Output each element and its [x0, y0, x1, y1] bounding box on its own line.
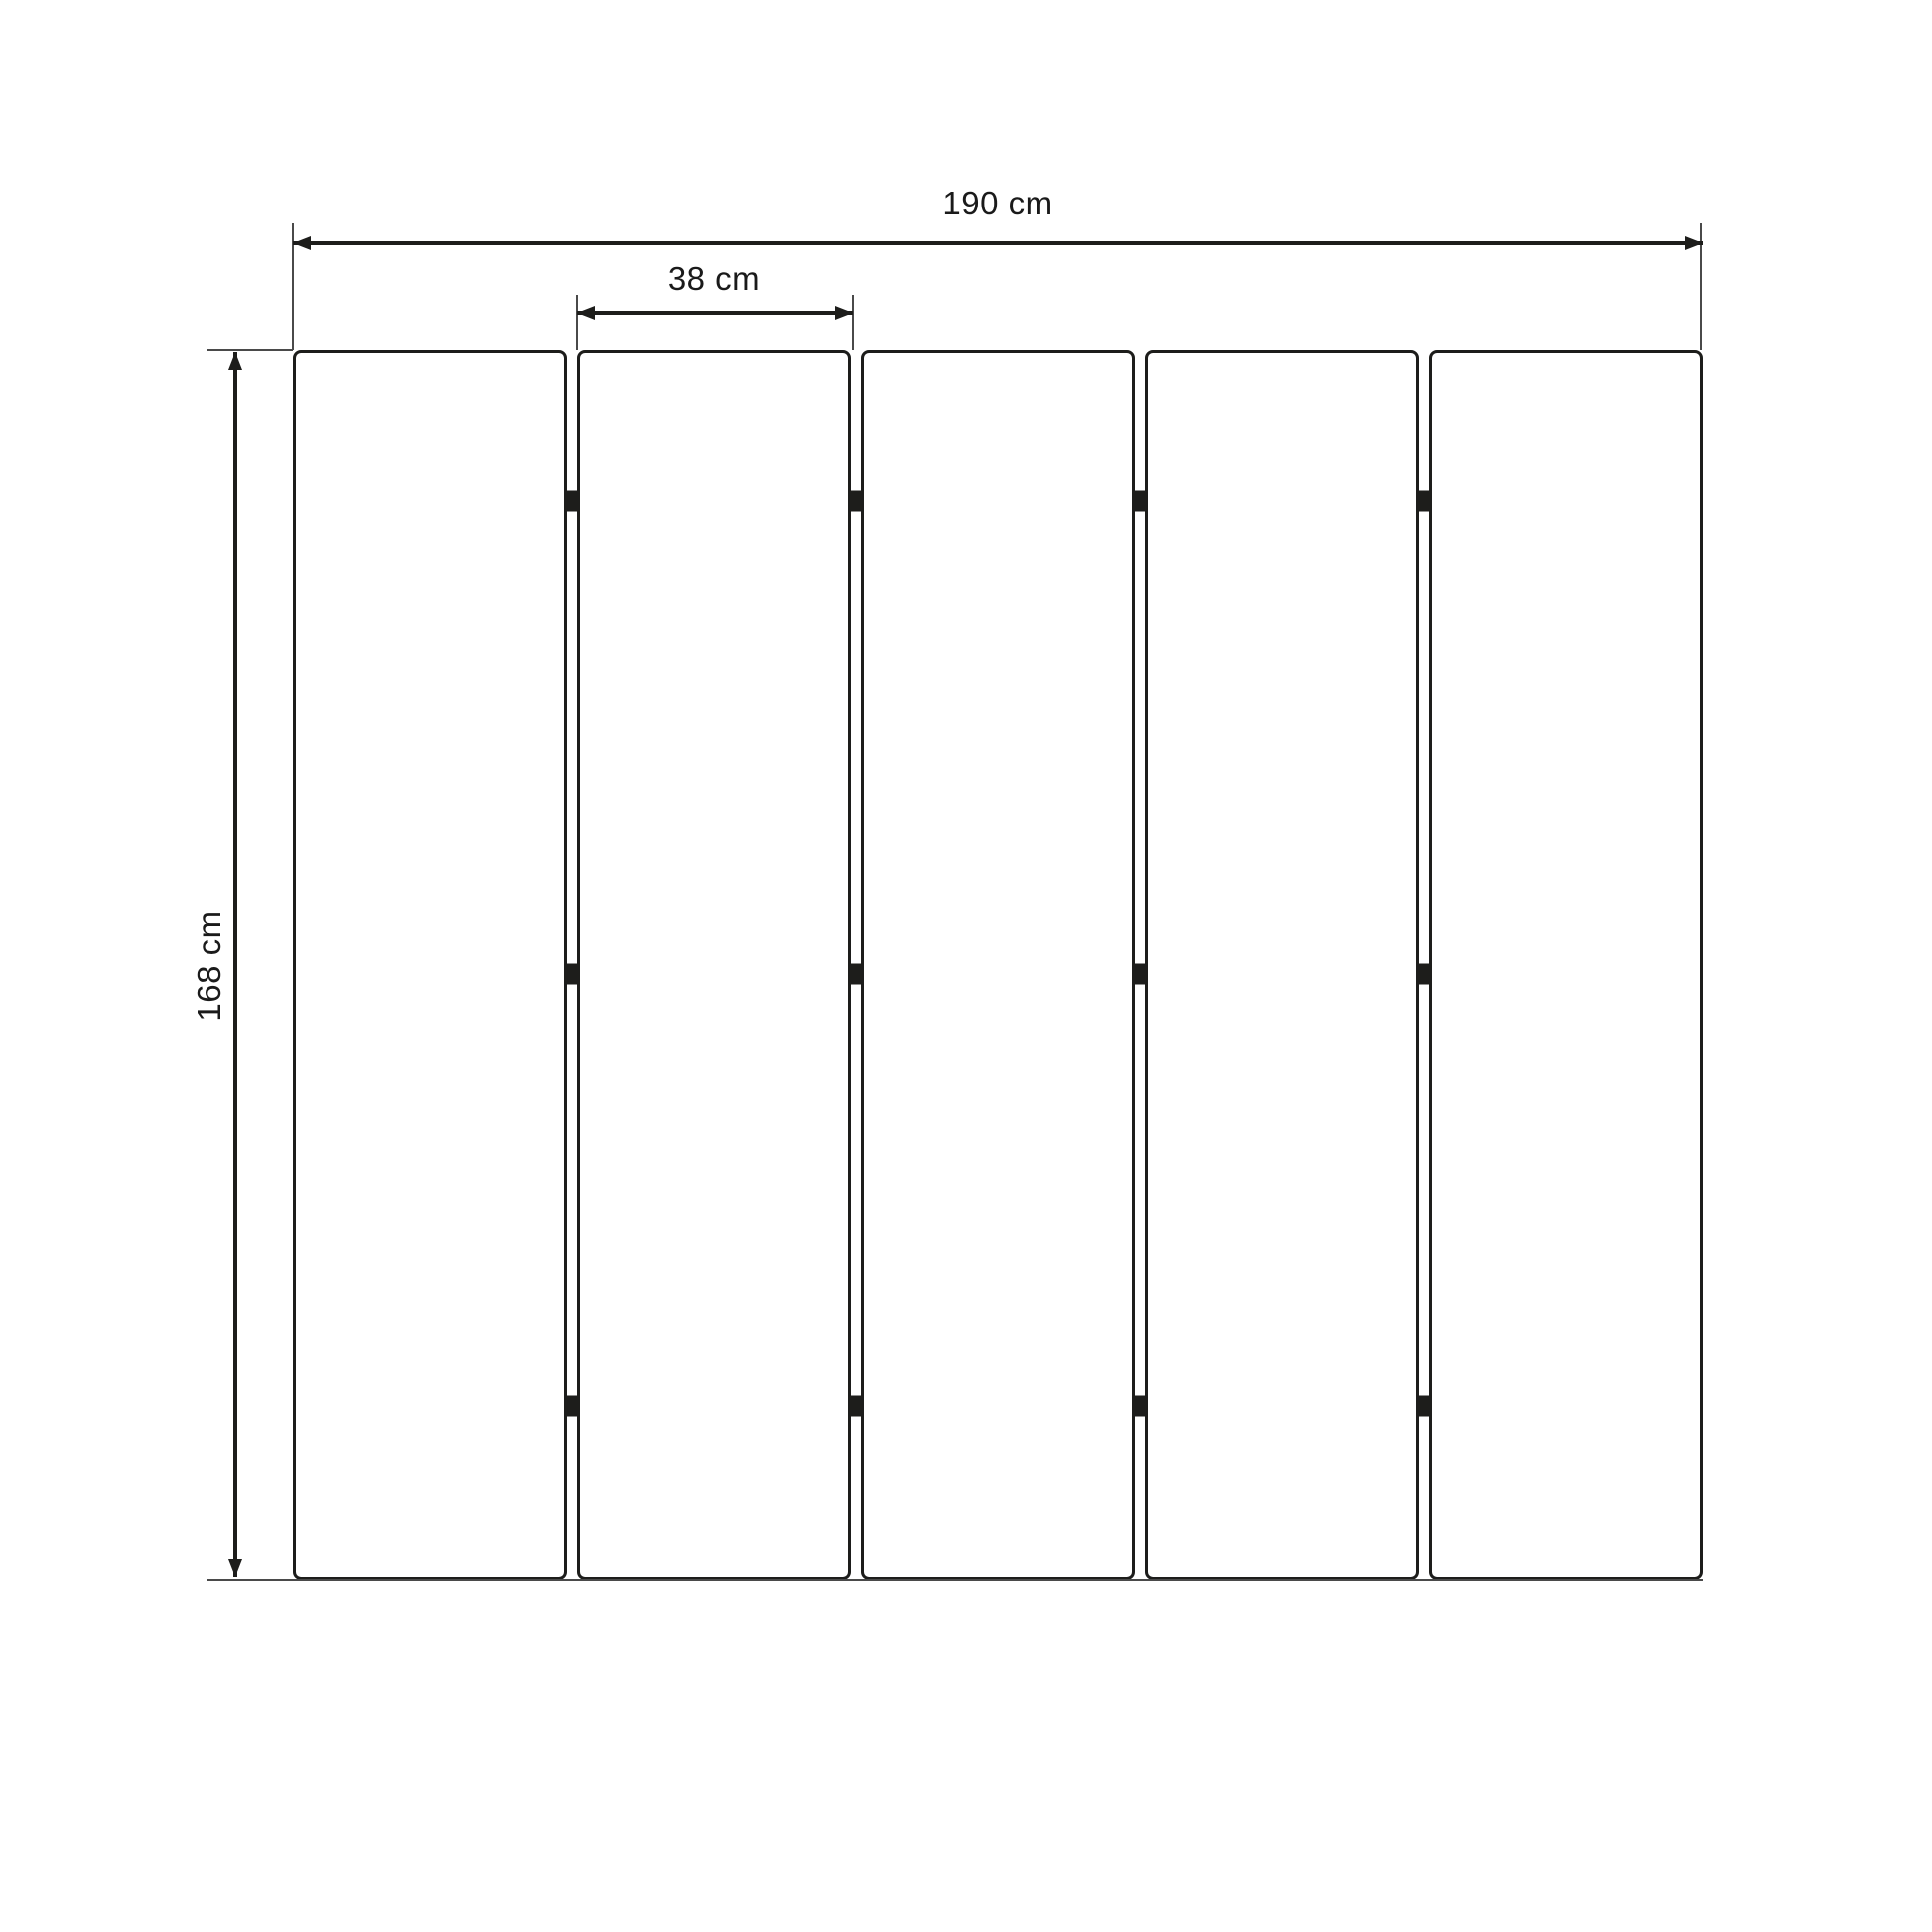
hinge-icon — [1134, 963, 1146, 984]
hinge-icon — [850, 491, 862, 512]
hinge-icon — [566, 491, 578, 512]
hinge-icon — [566, 963, 578, 984]
divider-panel-3 — [861, 350, 1135, 1580]
divider-panel-2 — [577, 350, 851, 1580]
hinge-icon — [1418, 491, 1430, 512]
hinge-column-2 — [850, 350, 862, 1580]
divider-panel-1 — [293, 350, 567, 1580]
dimension-line-height — [233, 352, 237, 1577]
hinge-icon — [1418, 963, 1430, 984]
hinge-column-4 — [1418, 350, 1430, 1580]
extension-line-height-top — [207, 349, 293, 351]
hinge-icon — [850, 1396, 862, 1417]
hinge-icon — [1418, 1396, 1430, 1417]
divider-panel-5 — [1429, 350, 1703, 1580]
folding-screen-dimension-drawing: 190 cm 38 cm 168 cm — [0, 0, 1932, 1932]
panel-width-label: 38 cm — [577, 259, 851, 299]
dimension-line-total-width — [293, 241, 1703, 245]
hinge-icon — [1134, 491, 1146, 512]
total-width-label: 190 cm — [293, 184, 1703, 223]
extension-line-panel-left — [576, 295, 578, 350]
hinge-icon — [1134, 1396, 1146, 1417]
extension-line-height-bottom — [207, 1579, 1703, 1581]
dimension-line-panel-width — [577, 311, 853, 315]
hinge-column-1 — [566, 350, 578, 1580]
extension-line-panel-right — [852, 295, 854, 350]
hinge-icon — [566, 1396, 578, 1417]
hinge-column-3 — [1134, 350, 1146, 1580]
divider-panel-4 — [1145, 350, 1419, 1580]
height-label: 168 cm — [190, 867, 229, 1065]
hinge-icon — [850, 963, 862, 984]
